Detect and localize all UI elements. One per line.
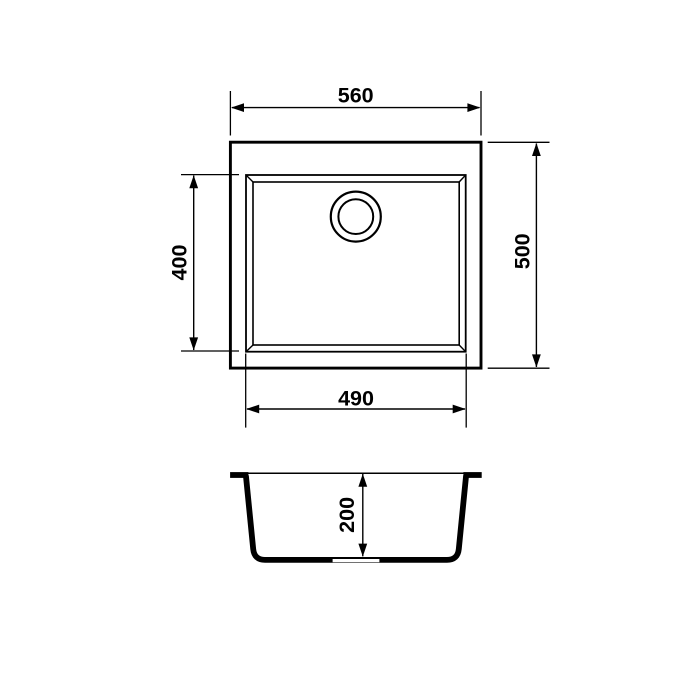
svg-text:490: 490: [338, 387, 374, 411]
svg-text:560: 560: [338, 84, 374, 108]
svg-text:500: 500: [511, 233, 535, 269]
svg-text:400: 400: [168, 245, 192, 281]
svg-text:200: 200: [335, 497, 359, 533]
